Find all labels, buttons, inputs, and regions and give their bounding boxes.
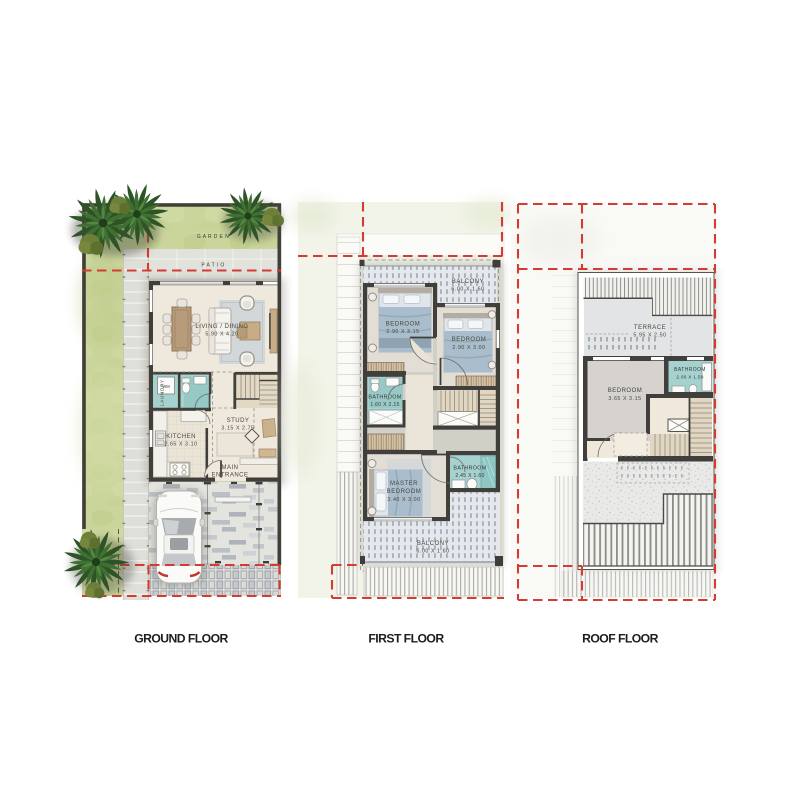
- svg-text:GROUND FLOOR: GROUND FLOOR: [134, 632, 228, 646]
- svg-text:2.00 X 1.50: 2.00 X 1.50: [676, 375, 703, 380]
- svg-text:3.15 X 2.75: 3.15 X 2.75: [221, 426, 254, 432]
- svg-text:5.90 X 4.20: 5.90 X 4.20: [205, 332, 238, 338]
- svg-text:BEDROOM: BEDROOM: [386, 322, 421, 328]
- svg-text:BEDROOM: BEDROOM: [387, 489, 422, 495]
- svg-text:KITCHEN: KITCHEN: [166, 434, 196, 440]
- svg-text:LIVING / DINING: LIVING / DINING: [195, 324, 248, 330]
- svg-text:STUDY: STUDY: [227, 418, 250, 424]
- svg-text:TERRACE: TERRACE: [634, 325, 666, 331]
- svg-text:MASTER: MASTER: [390, 481, 418, 487]
- svg-text:3.65 X 3.15: 3.65 X 3.15: [608, 396, 641, 402]
- svg-text:FIRST FLOOR: FIRST FLOOR: [368, 632, 444, 646]
- svg-text:ROOF FLOOR: ROOF FLOOR: [582, 632, 658, 646]
- svg-text:6.00 X 1.60: 6.00 X 1.60: [451, 287, 484, 293]
- svg-text:BALCONY: BALCONY: [452, 279, 484, 285]
- svg-text:3.40 X 3.00: 3.40 X 3.00: [387, 497, 420, 503]
- svg-text:2.90 X 3.00: 2.90 X 3.00: [452, 345, 485, 351]
- svg-text:2.65 X 3.10: 2.65 X 3.10: [164, 442, 197, 448]
- svg-text:5.95 X 2.50: 5.95 X 2.50: [633, 333, 666, 339]
- svg-text:LAUNDRY: LAUNDRY: [160, 379, 165, 406]
- svg-text:BEDROOM: BEDROOM: [608, 388, 643, 394]
- svg-text:P A T I O: P A T I O: [201, 263, 224, 269]
- svg-text:2.45 X 1.60: 2.45 X 1.60: [455, 473, 484, 479]
- svg-text:1.60 X 2.15: 1.60 X 2.15: [370, 402, 399, 408]
- svg-text:BEDROOM: BEDROOM: [452, 337, 487, 343]
- svg-text:BALCONY: BALCONY: [417, 541, 449, 547]
- svg-text:2.90 X 3.15: 2.90 X 3.15: [386, 329, 419, 335]
- svg-text:ENTRANCE: ENTRANCE: [211, 473, 248, 479]
- svg-text:G A R D E N: G A R D E N: [197, 234, 229, 240]
- svg-text:MAIN: MAIN: [222, 465, 239, 471]
- svg-text:BATHROOM: BATHROOM: [368, 395, 401, 401]
- svg-text:6.00 X 1.60: 6.00 X 1.60: [416, 549, 449, 555]
- svg-text:BATHROOM: BATHROOM: [453, 466, 486, 472]
- svg-text:BATHROOM: BATHROOM: [674, 367, 706, 373]
